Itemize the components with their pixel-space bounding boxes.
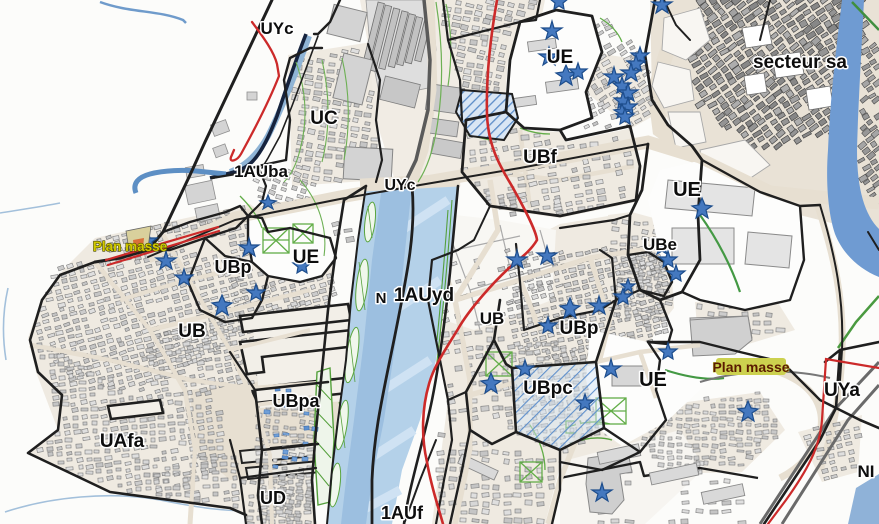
svg-text:N: N <box>376 290 387 307</box>
svg-text:UYc: UYc <box>260 19 293 38</box>
svg-text:UE: UE <box>673 179 701 201</box>
svg-text:UD: UD <box>260 488 286 508</box>
svg-text:UE: UE <box>547 47 573 68</box>
svg-text:UAfa: UAfa <box>100 431 145 452</box>
svg-text:1AUba: 1AUba <box>234 162 288 181</box>
svg-text:UBp: UBp <box>559 318 598 339</box>
svg-text:Plan masse: Plan masse <box>712 359 789 375</box>
svg-text:UBpa: UBpa <box>272 391 320 411</box>
svg-text:UBe: UBe <box>643 235 677 254</box>
svg-text:UB: UB <box>480 309 505 328</box>
svg-text:1AUf: 1AUf <box>381 503 424 523</box>
svg-text:Plan masse: Plan masse <box>93 239 168 254</box>
svg-text:1AUyd: 1AUyd <box>394 285 454 306</box>
svg-text:UC: UC <box>310 108 338 129</box>
svg-text:UYc: UYc <box>384 177 415 194</box>
svg-text:UBf: UBf <box>523 147 557 168</box>
svg-text:secteur sa: secteur sa <box>753 52 847 73</box>
svg-text:UE: UE <box>293 247 319 268</box>
svg-text:UBpc: UBpc <box>523 378 573 399</box>
svg-text:NI: NI <box>858 462 875 481</box>
svg-text:UBp: UBp <box>215 257 252 277</box>
svg-text:UB: UB <box>178 321 205 342</box>
svg-text:UYa: UYa <box>824 380 860 401</box>
svg-text:UE: UE <box>639 369 667 391</box>
